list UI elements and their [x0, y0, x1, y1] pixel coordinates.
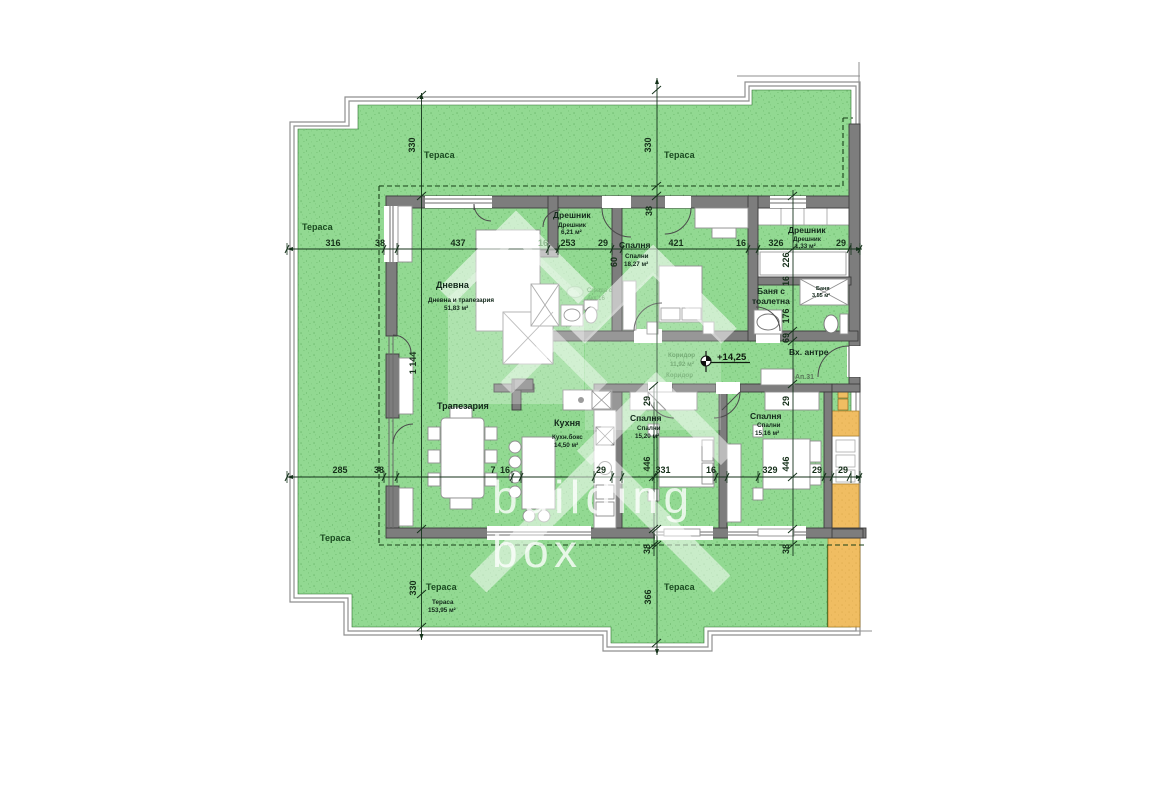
- svg-text:тоалетна: тоалетна: [752, 296, 790, 306]
- svg-text:Тераса: Тераса: [424, 150, 456, 160]
- svg-text:16: 16: [781, 276, 791, 286]
- svg-text:29: 29: [596, 465, 606, 475]
- svg-text:29: 29: [812, 465, 822, 475]
- svg-text:Спални: Спални: [625, 253, 649, 260]
- svg-text:18,27 м²: 18,27 м²: [624, 261, 648, 268]
- svg-text:16: 16: [736, 238, 746, 248]
- svg-text:Дневна и трапезария: Дневна и трапезария: [428, 297, 494, 304]
- svg-text:+14,25: +14,25: [717, 352, 747, 363]
- svg-text:421: 421: [668, 238, 683, 248]
- svg-text:3,55 м²: 3,55 м²: [812, 292, 830, 299]
- svg-text:330: 330: [408, 580, 418, 595]
- svg-text:446: 446: [781, 456, 791, 471]
- svg-text:29: 29: [598, 238, 608, 248]
- svg-text:Коридор: Коридор: [668, 352, 695, 359]
- svg-text:38: 38: [375, 238, 385, 248]
- svg-text:Тераса: Тераса: [664, 582, 696, 592]
- svg-text:285: 285: [332, 465, 347, 475]
- svg-text:6,21 м²: 6,21 м²: [561, 229, 582, 236]
- svg-text:Дрешник: Дрешник: [558, 222, 587, 229]
- svg-text:Тераса: Тераса: [302, 222, 334, 232]
- svg-text:Тераса: Тераса: [320, 533, 352, 543]
- svg-text:Вх. антре: Вх. антре: [789, 347, 829, 357]
- svg-text:Кухн.бокс: Кухн.бокс: [552, 433, 583, 441]
- svg-text:11,92 м²: 11,92 м²: [670, 361, 694, 368]
- svg-text:38: 38: [642, 544, 652, 554]
- svg-text:29: 29: [836, 238, 846, 248]
- svg-text:38: 38: [644, 206, 654, 216]
- svg-text:box: box: [492, 525, 583, 577]
- svg-text:Спални: Спални: [637, 425, 661, 432]
- svg-text:29: 29: [781, 396, 791, 406]
- svg-text:14,50 м²: 14,50 м²: [554, 442, 578, 449]
- svg-text:16: 16: [538, 238, 548, 248]
- svg-text:226: 226: [781, 252, 791, 267]
- svg-text:176: 176: [781, 308, 791, 323]
- svg-text:60: 60: [609, 257, 619, 267]
- svg-text:Спалня: Спалня: [750, 411, 782, 421]
- svg-text:38: 38: [374, 465, 384, 475]
- svg-text:Спалня: Спалня: [630, 413, 662, 423]
- svg-text:Баня: Баня: [816, 286, 830, 292]
- svg-text:Дрешник: Дрешник: [553, 210, 591, 220]
- svg-text:253: 253: [560, 238, 575, 248]
- svg-text:29: 29: [642, 396, 652, 406]
- svg-text:Коридор: Коридор: [666, 372, 693, 379]
- svg-text:Кухня: Кухня: [554, 418, 580, 428]
- svg-text:316: 316: [325, 238, 340, 248]
- svg-text:16: 16: [500, 465, 510, 475]
- svg-text:330: 330: [643, 137, 653, 152]
- svg-text:38: 38: [781, 544, 791, 554]
- svg-text:326: 326: [768, 238, 783, 248]
- svg-text:Акт 16: Акт 16: [587, 296, 605, 302]
- svg-text:Тераса: Тераса: [664, 150, 696, 160]
- svg-text:Баня с: Баня с: [757, 286, 785, 296]
- svg-text:1,33 м²: 1,33 м²: [795, 243, 816, 250]
- svg-text:153,95 м²: 153,95 м²: [428, 607, 456, 614]
- svg-text:329: 329: [762, 465, 777, 475]
- svg-text:330: 330: [407, 137, 417, 152]
- svg-text:Спални: Спални: [757, 422, 781, 429]
- svg-text:Тераса: Тераса: [432, 599, 454, 606]
- svg-text:446: 446: [642, 456, 652, 471]
- svg-text:Дрешник: Дрешник: [788, 225, 826, 235]
- svg-text:7: 7: [490, 465, 495, 475]
- svg-text:29: 29: [838, 465, 848, 475]
- svg-text:Сграда с: Сграда с: [587, 288, 612, 294]
- svg-text:69: 69: [781, 333, 791, 343]
- svg-text:16: 16: [706, 465, 716, 475]
- svg-text:Дрешник: Дрешник: [793, 236, 822, 243]
- svg-text:1 144: 1 144: [408, 352, 418, 375]
- svg-text:Ап.31: Ап.31: [795, 374, 814, 381]
- svg-text:437: 437: [450, 238, 465, 248]
- svg-text:Трапезария: Трапезария: [437, 401, 489, 411]
- svg-text:Тераса: Тераса: [426, 582, 458, 592]
- svg-text:Дневна: Дневна: [436, 280, 470, 290]
- svg-text:15,16 м²: 15,16 м²: [755, 430, 779, 437]
- svg-text:15,20 м²: 15,20 м²: [635, 433, 659, 440]
- svg-text:366: 366: [643, 589, 653, 604]
- svg-text:51,83 м²: 51,83 м²: [444, 305, 468, 312]
